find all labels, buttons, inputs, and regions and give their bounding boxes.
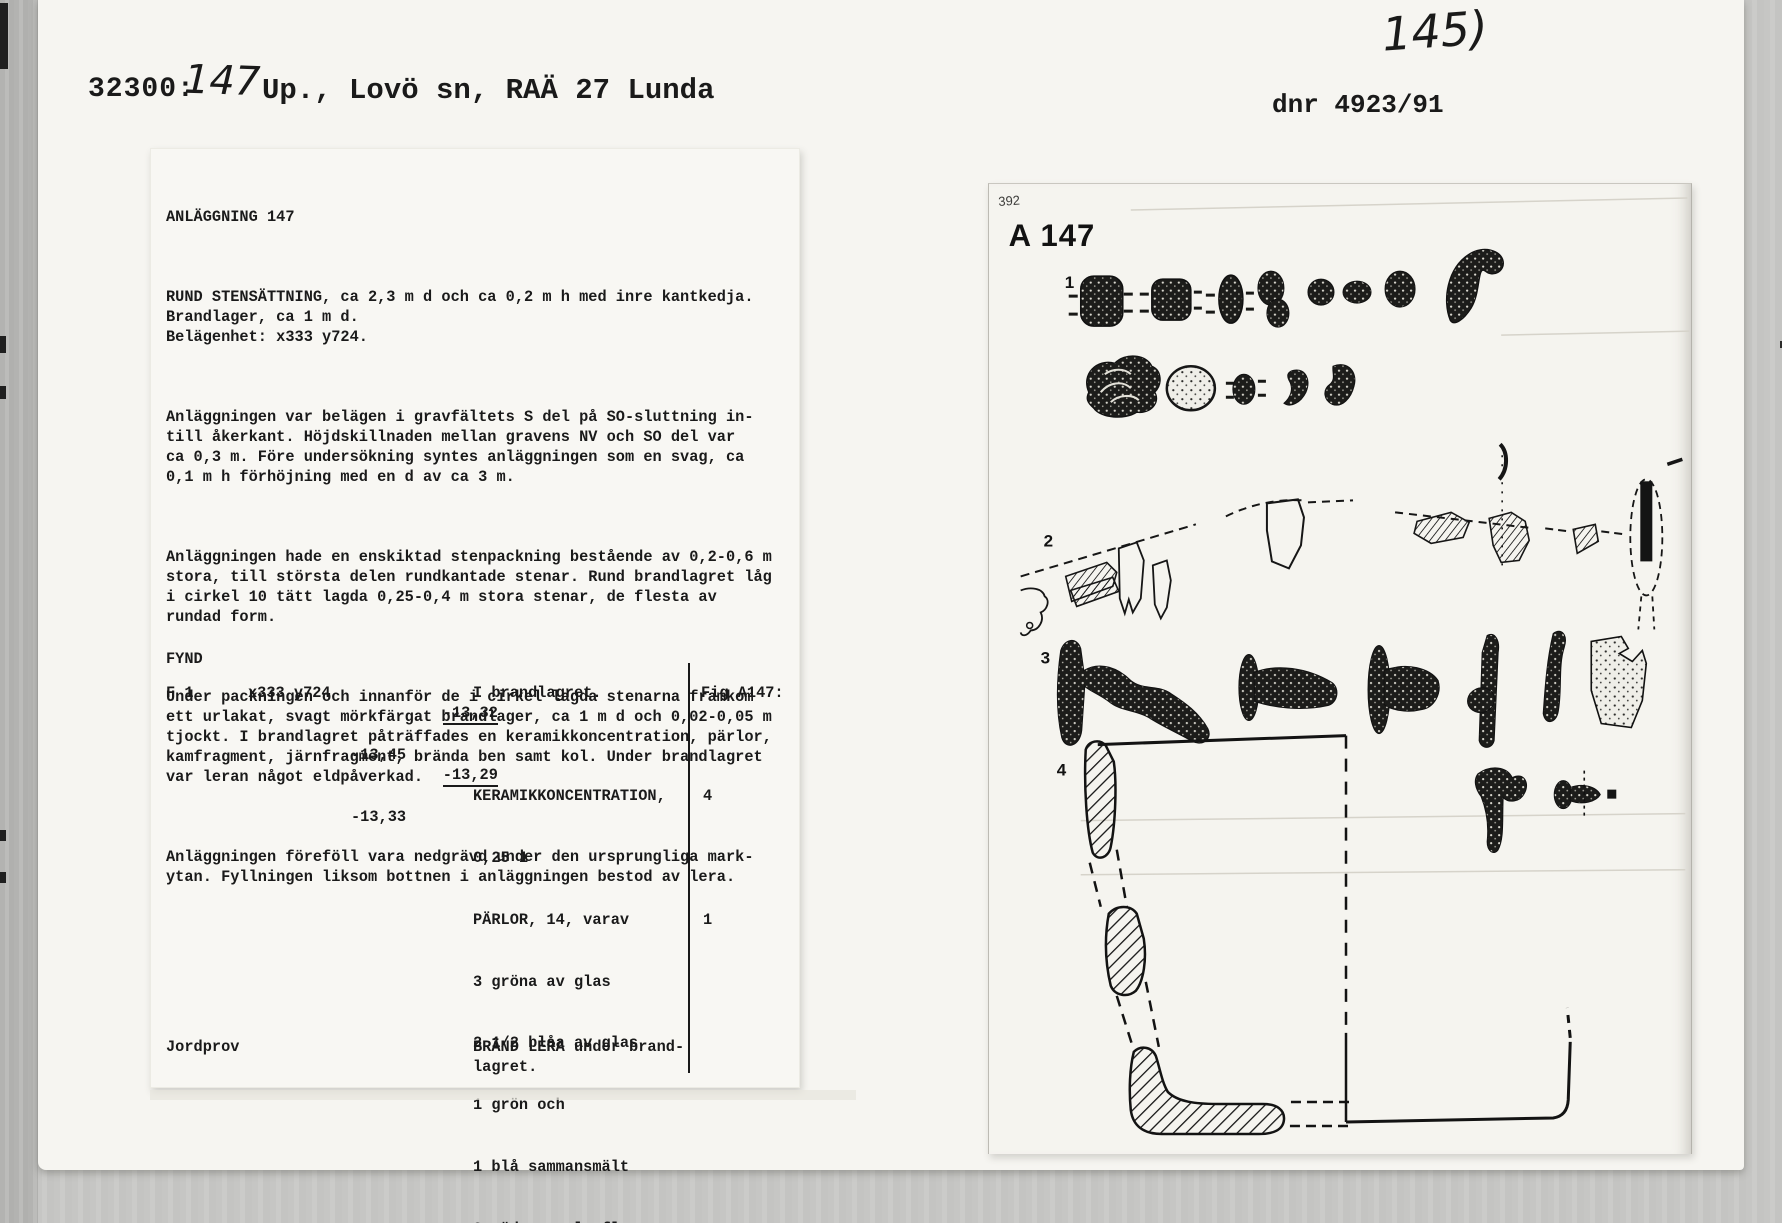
find-item: 1 blå sammansmält: [473, 1157, 666, 1178]
scan-artifact: [0, 872, 6, 883]
scan-artifact: [0, 386, 6, 399]
fig-number-column: 4 1 2 3: [703, 745, 795, 1223]
level-upper: -13,32: [443, 703, 498, 725]
catalog-number: 32300:: [88, 74, 195, 105]
find-context: I brandlagret.: [473, 683, 602, 703]
fig-ref: 1: [703, 910, 795, 931]
fig-column-divider: [688, 663, 690, 1073]
figure-section-label-1: 1: [1065, 273, 1074, 292]
typed-report-sheet: ANLÄGGNING 147 RUND STENSÄTTNING, ca 2,3…: [150, 148, 800, 1088]
figure-section-label-4: 4: [1057, 761, 1067, 780]
find-coordinates: x333 y724: [248, 683, 331, 703]
find-item: 0,25 1: [473, 848, 666, 869]
figure-drawing: 392 A 147 1 2 3 4: [988, 183, 1690, 1153]
soil-sample-text: BRÄND LERA under brand- lagret.: [473, 1037, 684, 1077]
report-paragraph: RUND STENSÄTTNING, ca 2,3 m d och ca 0,2…: [166, 287, 772, 347]
scan-artifact: [0, 336, 6, 353]
fig-ref: [703, 1033, 795, 1054]
find-item-list: KERAMIKKONCENTRATION, 0,25 1 PÄRLOR, 14,…: [473, 745, 666, 1223]
handwritten-feature-number: 147: [183, 57, 261, 106]
scanner-edge: [0, 0, 38, 1223]
figure-title: A 147: [1009, 218, 1096, 253]
finds-heading: FYND: [166, 649, 203, 669]
figure-section-label-3: 3: [1041, 648, 1050, 667]
find-item: KERAMIKKONCENTRATION,: [473, 786, 666, 807]
scan-artifact: [0, 830, 6, 841]
find-item: PÄRLOR, 14, varav: [473, 910, 666, 931]
document-page: 32300: 147 Up., Lovö sn, RAÄ 27 Lunda 14…: [38, 0, 1744, 1170]
figure-page-number: 392: [998, 193, 1021, 209]
handwritten-page-note: 145): [1380, 0, 1489, 61]
fig-ref: [703, 1219, 795, 1223]
beads-row-2-drawing: [1087, 356, 1355, 417]
fig-ref: [703, 1157, 795, 1178]
fig-ref: [703, 848, 795, 869]
scan-artifact: [0, 3, 8, 69]
report-paragraph: Anläggningen hade en enskiktad stenpackn…: [166, 547, 772, 627]
document-dnr: dnr 4923/91: [1272, 90, 1444, 120]
report-paragraph: Anläggningen var belägen i gravfältets S…: [166, 407, 772, 487]
ceramic-sherds-drawing: [1021, 444, 1683, 635]
report-heading: ANLÄGGNING 147: [166, 207, 772, 227]
find-item: 2 röda av glasfluss: [473, 1219, 666, 1223]
fig-column-heading: Fig A147:: [701, 683, 784, 703]
scanned-document: 32300: 147 Up., Lovö sn, RAÄ 27 Lunda 14…: [0, 0, 1782, 1223]
find-item: 3 gröna av glas: [473, 972, 666, 993]
document-title: Up., Lovö sn, RAÄ 27 Lunda: [262, 74, 714, 107]
soil-sample-label: Jordprov: [166, 1037, 239, 1057]
fig-ref: [703, 972, 795, 993]
figure-section-label-2: 2: [1044, 531, 1053, 550]
scan-shadow: [150, 1090, 856, 1100]
fig-ref: 4: [703, 786, 795, 807]
find-id: F 1: [166, 683, 194, 703]
